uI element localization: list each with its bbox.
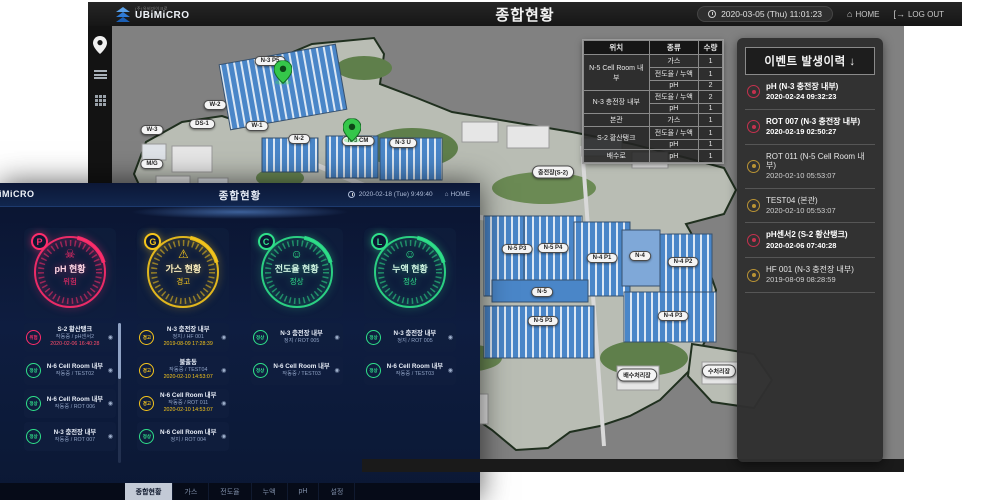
tab-ph[interactable]: pH — [288, 483, 320, 500]
eye-icon[interactable]: ◉ — [108, 400, 113, 407]
gauge-label: 누액 현황 — [392, 262, 428, 275]
app-logo: (주)유비마이크로 UBiMiCRO — [116, 7, 190, 22]
eye-icon[interactable]: ◉ — [108, 367, 113, 374]
tab-leak[interactable]: 누액 — [252, 483, 288, 500]
list-item[interactable]: 경고 N-3 충전장 내부 정지 / HF 001 2019-08-09 17:… — [137, 323, 229, 352]
map-building-label: N-4 P3 — [658, 311, 689, 321]
gas-status-gauge[interactable]: G ⚠ 가스 현황 경고 — [137, 228, 229, 318]
gauge-letter-badge: C — [258, 233, 275, 250]
event-item[interactable]: ROT 011 (N-5 Cell Room 내부) 2020-02-10 05… — [745, 145, 875, 189]
status-badge: 정상 — [26, 363, 41, 378]
gauge-status: 위험 — [63, 276, 77, 287]
map-building-label: 수처리장 — [702, 365, 736, 378]
map-building-label: N-4 — [629, 251, 651, 261]
status-badge: 위험 — [26, 330, 41, 345]
map-building-label: 충전장(S-2) — [532, 166, 574, 179]
table-row: N-3 충전장 내부 전도율 / 누액 2 — [584, 91, 723, 104]
danger-event-icon — [747, 120, 760, 133]
list-item[interactable]: 위험 S-2 황산탱크 작동중 / pH센서2 2020-02-06 16:40… — [24, 323, 116, 352]
status-badge: 정상 — [26, 396, 41, 411]
tab-gas[interactable]: 가스 — [173, 483, 209, 500]
map-building-label: N-2 — [288, 134, 310, 144]
event-item[interactable]: ROT 007 (N-3 충전장 내부) 2020-02-19 02:50:27 — [745, 110, 875, 145]
map-building-label: N-4 P2 — [668, 257, 699, 267]
list-item[interactable]: 경고 N-6 Cell Room 내부 작동중 / ROT 011 2020-0… — [137, 389, 229, 418]
logout-label: LOG OUT — [908, 10, 944, 19]
eye-icon[interactable]: ◉ — [448, 367, 453, 374]
status-badge: 경고 — [139, 330, 154, 345]
logout-button[interactable]: [→ LOG OUT — [893, 9, 944, 19]
list-item[interactable]: 정상 N-6 Cell Room 내부 작동중 / TEST03 ◉ — [251, 356, 343, 385]
status-badge: 경고 — [139, 396, 154, 411]
home-button[interactable]: ⌂ HOME — [847, 9, 879, 19]
map-building-label: W-3 — [141, 125, 164, 135]
list-item[interactable]: 정상 N-3 충전장 내부 정지 / ROT 005 ◉ — [251, 323, 343, 352]
map-pin-icon[interactable] — [343, 118, 361, 147]
logo-text: UBiMiCRO — [0, 190, 35, 199]
danger-event-icon — [747, 234, 760, 247]
list-item[interactable]: 정상 N-6 Cell Room 내부 작동중 / TEST02 ◉ — [24, 356, 116, 385]
warning-event-icon — [747, 269, 760, 282]
conductivity-sensor-list: 정상 N-3 충전장 내부 정지 / ROT 005 ◉ 정상 N-6 Cell… — [251, 323, 343, 455]
clock-icon — [708, 10, 716, 18]
eye-icon[interactable]: ◉ — [108, 433, 113, 440]
map-building-label: N-5 P3 — [528, 316, 559, 326]
status-badge: 정상 — [253, 363, 268, 378]
list-scrollbar[interactable] — [118, 323, 121, 463]
gauge-letter-badge: G — [144, 233, 161, 250]
map-building-label: N-5 P4 — [538, 243, 569, 253]
status-badge: 정상 — [366, 330, 381, 345]
gauge-label: 가스 현황 — [166, 262, 202, 275]
gas-sensor-list: 경고 N-3 충전장 내부 정지 / HF 001 2019-08-09 17:… — [137, 323, 229, 455]
status-badge: 경고 — [139, 363, 154, 378]
home-icon: ⌂ — [847, 9, 852, 19]
eye-icon[interactable]: ◉ — [221, 367, 226, 374]
screen: (주)유비마이크로 UBiMiCRO 종합현황 2020-03-05 (Thu)… — [0, 0, 1000, 500]
table-header-type: 종류 — [649, 41, 699, 55]
gauge-label: pH 현황 — [54, 262, 85, 275]
top-bar: (주)유비마이크로 UBiMiCRO 종합현황 2020-03-05 (Thu)… — [88, 2, 962, 26]
list-item[interactable]: 경고 불출동 작동중 / TEST04 2020-02-10 14:53:07 … — [137, 356, 229, 385]
table-row: S-2 황산탱크 전도율 / 누액 1 — [584, 127, 723, 140]
list-item[interactable]: 정상 N-3 충전장 내부 정지 / ROT 005 ◉ — [364, 323, 456, 352]
list-item[interactable]: 정상 N-3 충전장 내부 작동중 / ROT 007 ◉ — [24, 422, 116, 451]
map-building-label: W-1 — [246, 121, 269, 131]
event-item[interactable]: TEST04 (본관) 2020-02-10 05:53:07 — [745, 189, 875, 224]
map-building-label: 배수처리장 — [617, 369, 657, 382]
gauge-status: 정상 — [403, 276, 417, 287]
status-badge: 정상 — [253, 330, 268, 345]
table-header-location: 위치 — [584, 41, 650, 55]
clock-text: 2020-03-05 (Thu) 11:01:23 — [721, 9, 822, 19]
eye-icon[interactable]: ◉ — [221, 334, 226, 341]
eye-icon[interactable]: ◉ — [334, 367, 339, 374]
eye-icon[interactable]: ◉ — [448, 334, 453, 341]
eye-icon[interactable]: ◉ — [221, 433, 226, 440]
map-building-label: W-2 — [204, 100, 227, 110]
smiley-icon: ☺ — [404, 248, 416, 261]
danger-event-icon — [747, 85, 760, 98]
status-badge: 정상 — [366, 363, 381, 378]
status-gauges-row: P ☠ pH 현황 위험 G ⚠ — [0, 228, 480, 318]
eye-icon[interactable]: ◉ — [108, 334, 113, 341]
table-row: 본관 가스 1 — [584, 114, 723, 127]
list-item[interactable]: 정상 N-6 Cell Room 내부 작동중 / TEST03 ◉ — [364, 356, 456, 385]
status-overlay-window: UBiMiCRO 종합현황 2020-02-18 (Tue) 9:49:40 ⌂… — [0, 183, 480, 500]
overlay-top-bar: UBiMiCRO 종합현황 2020-02-18 (Tue) 9:49:40 ⌂… — [0, 183, 480, 207]
event-history-panel: 이벤트 발생이력 ↓ pH (N-3 충전장 내부) 2020-02-24 09… — [737, 38, 883, 462]
map-building-label: M/G — [140, 159, 163, 169]
logo-text: UBiMiCRO — [135, 11, 190, 21]
gauge-label: 전도율 현황 — [275, 262, 319, 275]
table-header-qty: 수량 — [699, 41, 723, 55]
ph-sensor-list: 위험 S-2 황산탱크 작동중 / pH센서2 2020-02-06 16:40… — [24, 323, 116, 455]
table-row: 배수로 pH 1 — [584, 150, 723, 163]
home-icon: ⌂ — [445, 191, 449, 198]
eye-icon[interactable]: ◉ — [334, 334, 339, 341]
leak-sensor-list: 정상 N-3 충전장 내부 정지 / ROT 005 ◉ 정상 N-6 Cell… — [364, 323, 456, 455]
map-building-label: DS-1 — [189, 119, 215, 129]
warning-triangle-icon: ⚠ — [178, 248, 189, 261]
gauge-letter-badge: L — [371, 233, 388, 250]
logout-icon: [→ — [893, 9, 905, 19]
map-building-label: N-4 P1 — [587, 253, 618, 263]
eye-icon[interactable]: ◉ — [221, 400, 226, 407]
map-building-label: N-3 U — [389, 138, 417, 148]
map-pin-tool-icon[interactable] — [93, 36, 107, 54]
event-item[interactable]: pH (N-3 충전장 내부) 2020-02-24 09:32:23 — [745, 75, 875, 110]
status-badge: 정상 — [139, 429, 154, 444]
leak-status-gauge[interactable]: L ☺ 누액 현황 정상 — [364, 228, 456, 318]
sensor-lists-row: 위험 S-2 황산탱크 작동중 / pH센서2 2020-02-06 16:40… — [0, 323, 480, 455]
logo-diamond-icon — [116, 7, 131, 22]
list-item[interactable]: 정상 N-6 Cell Room 내부 정지 / ROT 004 ◉ — [137, 422, 229, 451]
clock-display: 2020-03-05 (Thu) 11:01:23 — [697, 6, 833, 22]
header-glow-decoration — [130, 205, 350, 219]
overlay-home-button[interactable]: ⌂ HOME — [445, 191, 470, 198]
overlay-logo: UBiMiCRO — [0, 187, 35, 202]
clock-icon — [348, 191, 355, 198]
map-pin-icon[interactable] — [274, 60, 292, 89]
conductivity-status-gauge[interactable]: C ☺ 전도율 현황 정상 — [251, 228, 343, 318]
ph-status-gauge[interactable]: P ☠ pH 현황 위험 — [24, 228, 116, 318]
grid-menu-icon[interactable] — [95, 95, 106, 106]
warning-event-icon — [747, 199, 760, 212]
event-history-title: 이벤트 발생이력 ↓ — [745, 47, 875, 75]
tab-overview[interactable]: 종합현황 — [125, 483, 174, 500]
warning-event-icon — [747, 160, 760, 173]
sensor-count-table: 위치 종류 수량 N-5 Cell Room 내부 가스 1 전도율 / 누액 … — [583, 40, 723, 163]
gauge-status: 정상 — [290, 276, 304, 287]
event-item[interactable]: HF 001 (N-3 충전장 내부) 2019-08-09 08:28:59 — [745, 258, 875, 293]
map-building-label: N-5 P3 — [502, 244, 533, 254]
status-badge: 정상 — [26, 429, 41, 444]
list-menu-icon[interactable] — [94, 70, 107, 79]
gauge-status: 경고 — [176, 276, 190, 287]
gauge-letter-badge: P — [31, 233, 48, 250]
overlay-clock-display: 2020-02-18 (Tue) 9:49:40 — [348, 191, 433, 198]
tab-conductivity[interactable]: 전도율 — [209, 483, 251, 500]
table-row: N-5 Cell Room 내부 가스 1 — [584, 55, 723, 68]
list-item[interactable]: 정상 N-6 Cell Room 내부 작동중 / ROT 006 ◉ — [24, 389, 116, 418]
tab-settings[interactable]: 설정 — [319, 483, 355, 500]
home-label: HOME — [855, 10, 879, 19]
smiley-icon: ☺ — [291, 248, 303, 261]
bottom-tab-bar: 종합현황 가스 전도율 누액 pH 설정 — [0, 483, 480, 500]
skull-icon: ☠ — [65, 248, 76, 261]
map-building-label: N-5 — [531, 287, 553, 297]
event-item[interactable]: pH센서2 (S-2 황산탱크) 2020-02-06 07:40:28 — [745, 223, 875, 258]
